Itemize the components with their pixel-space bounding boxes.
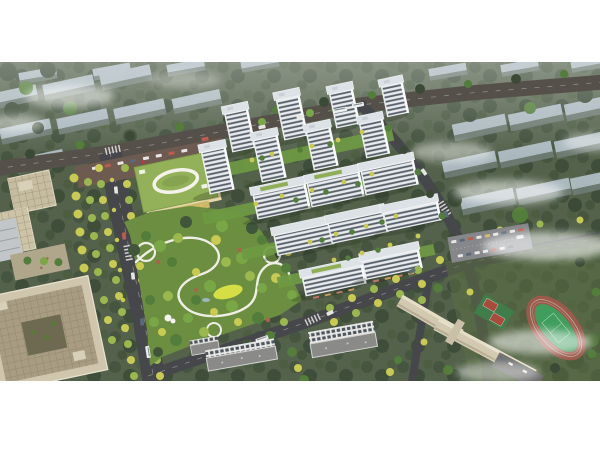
pond: [202, 298, 210, 302]
rendering-canvas: [0, 0, 600, 450]
aerial-rendering: [0, 0, 600, 450]
flag: [141, 160, 144, 163]
